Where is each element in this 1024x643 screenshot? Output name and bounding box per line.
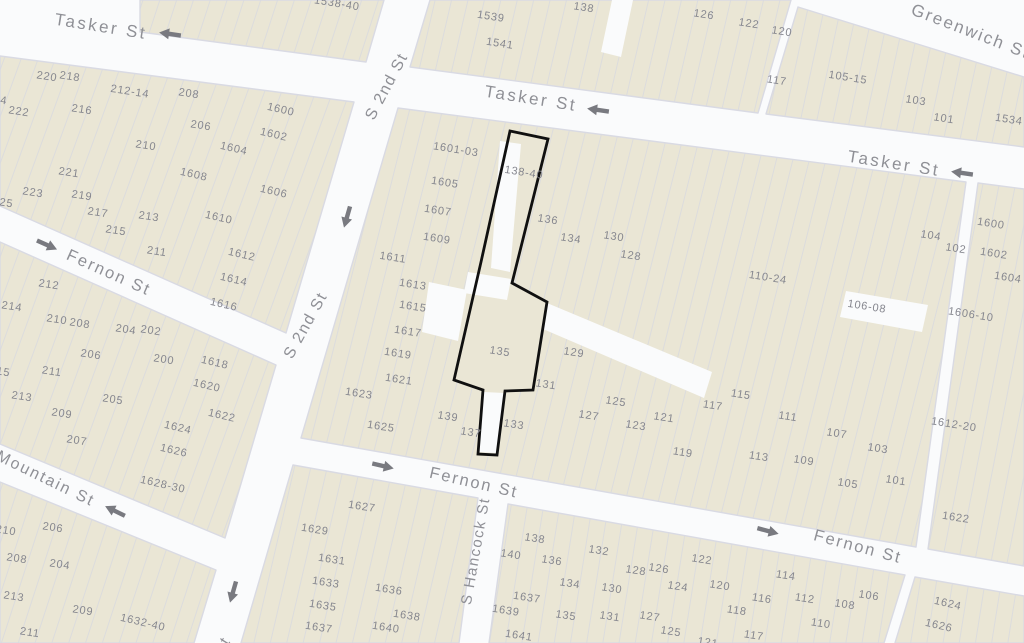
parcel-map-canvas[interactable]: Tasker StTasker StTasker StGreenwich StS… [0, 0, 1024, 643]
parcel-number-label: 215 [0, 364, 11, 379]
parcel-number-label: 210 [0, 523, 17, 538]
parcel-number-label: 225 [0, 195, 14, 210]
parcel-map-svg[interactable]: Tasker StTasker StTasker StGreenwich StS… [0, 0, 1024, 643]
